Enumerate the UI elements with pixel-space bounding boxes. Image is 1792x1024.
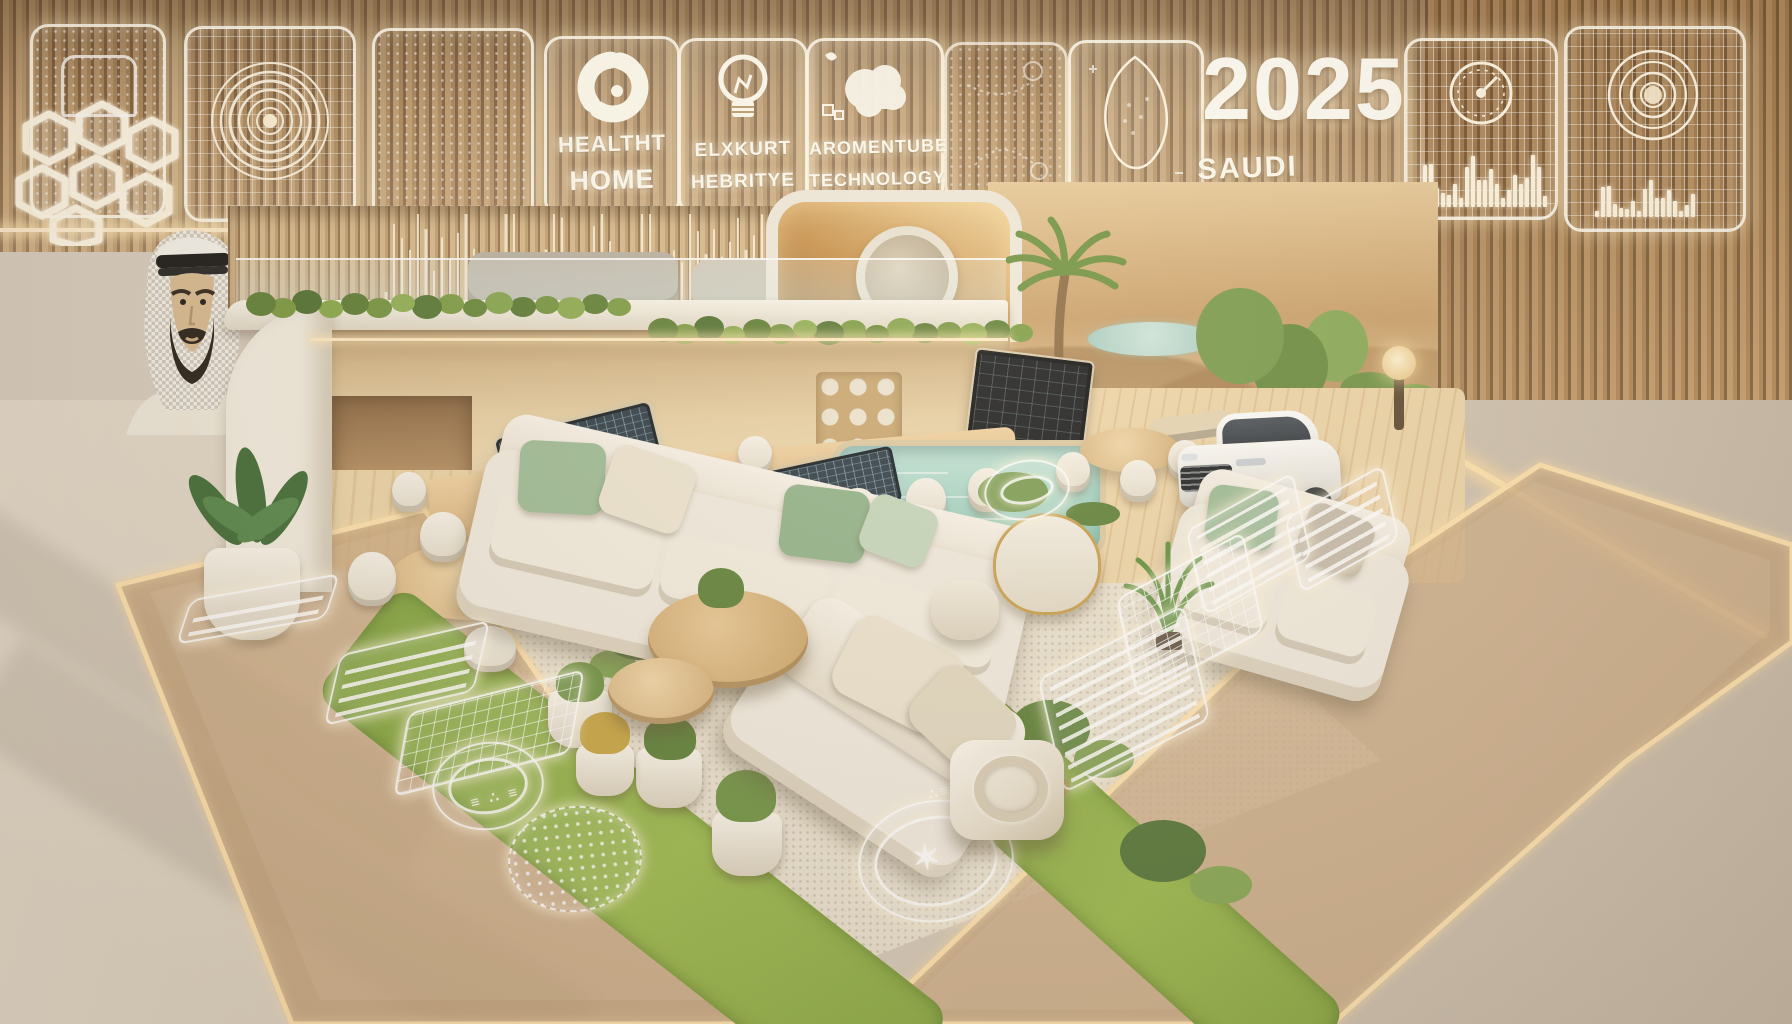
- panel-etched-circuit: [944, 42, 1068, 202]
- panel-label: TECHNOLOGY: [809, 167, 942, 191]
- gold-frame-armchair: [993, 513, 1101, 615]
- teardrop-map-icon: [1071, 43, 1201, 201]
- shrub: [1120, 820, 1206, 882]
- panel-map-balloon: [1068, 40, 1204, 204]
- etched-shape-icon: [61, 55, 137, 117]
- concentric-rings-icon: [187, 29, 353, 219]
- panel-grid-mesh: [372, 28, 534, 226]
- panel-label: ELXKURT: [681, 137, 806, 162]
- pot-plant: [716, 770, 776, 822]
- panel-label: HOME: [547, 163, 678, 197]
- cafe-chair: [348, 552, 396, 606]
- planter-plant-leaves: [156, 440, 346, 570]
- title-year: 2025: [1202, 38, 1402, 140]
- tree-canopy: [1196, 288, 1284, 384]
- panel-etched-objects: [30, 24, 166, 218]
- panel-smart-lighting: ELXKURT HEBRITYE: [678, 38, 808, 216]
- smart-home-exhibit-render: HEALTHT HOME ELXKURT HEBRITYE AROMENTUBE…: [0, 0, 1792, 1024]
- panel-label: HEBRITYE: [681, 169, 806, 194]
- gauge-dial-icon: [1407, 41, 1555, 141]
- panel-label: AROMENTUBE: [809, 135, 942, 159]
- mezzanine-planter-hedge: [246, 292, 626, 332]
- floor-emblem-glyph: ✶: [909, 836, 946, 880]
- side-pouf: [931, 580, 999, 640]
- outdoor-chair: [1120, 460, 1156, 502]
- panel-rings-skyline: [1564, 26, 1746, 232]
- skyline-bars-icon: [1595, 171, 1695, 217]
- dining-chair: [392, 472, 426, 512]
- nesting-table: [608, 658, 714, 724]
- rings-icon: [1567, 29, 1743, 149]
- panel-health-home: HEALTHT HOME: [544, 36, 680, 218]
- robot-vacuum-device: [950, 740, 1064, 840]
- green-pillow: [517, 439, 607, 515]
- cloud-icon: [809, 41, 941, 133]
- circuit-etch-icon: [947, 45, 1065, 199]
- sage-pillow: [777, 483, 871, 565]
- panel-concentric-rings: [184, 26, 356, 222]
- panel-label: HEALTHT: [547, 129, 678, 158]
- lightbulb-icon: [681, 41, 805, 137]
- under-mezzanine-light: [310, 338, 1008, 341]
- table-plant: [698, 568, 744, 608]
- car-headlight: [1181, 453, 1197, 461]
- lamp-globe-icon: [1382, 346, 1416, 380]
- cafe-chair: [420, 512, 466, 562]
- segmented-ring-icon: [547, 39, 677, 131]
- wall-lamp: [1378, 346, 1420, 430]
- golden-shrub: [580, 712, 630, 754]
